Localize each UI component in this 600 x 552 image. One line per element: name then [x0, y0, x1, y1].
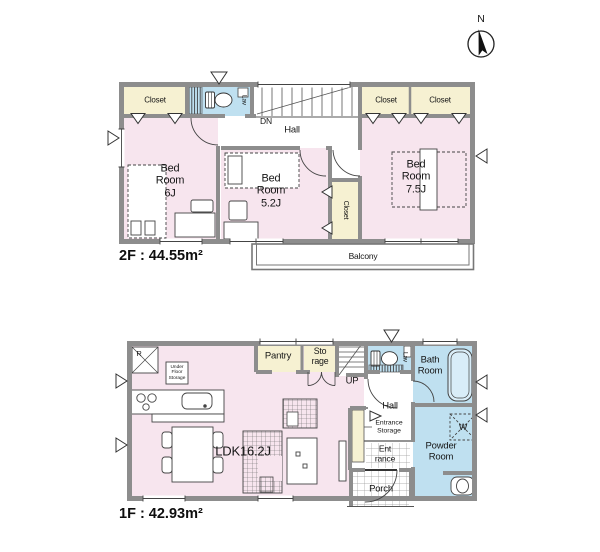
room-label-entrance: Ent rance [375, 444, 395, 463]
floor-1f-area-label: 1F : 42.93m² [119, 506, 203, 522]
labels-layer: Closet Lav DN Hall Closet Closet Bed Roo… [0, 0, 600, 552]
room-label-1f-hall: Hall [382, 402, 398, 413]
entrance-storage-label: Entrance Storage [375, 419, 402, 434]
room-label-porch: Porch [369, 485, 393, 496]
floor-2f-area-label: 2F : 44.55m² [119, 248, 203, 264]
room-label-2f-closet-right-2: Closet [429, 97, 450, 106]
room-label-pantry: Pantry [265, 352, 291, 363]
room-label-storage: Sto rage [312, 347, 329, 367]
washing-machine-label: W [459, 422, 467, 432]
room-label-powder-room: Powder Room [425, 441, 456, 462]
room-label-balcony: Balcony [349, 252, 378, 262]
stairs-up-label: UP [346, 377, 359, 388]
floor-plan-page: Closet Lav DN Hall Closet Closet Bed Roo… [0, 0, 600, 552]
room-label-2f-closet-right-1: Closet [375, 97, 396, 106]
stairs-down-label: DN [260, 117, 272, 127]
room-label-bedroom-6j: Bed Room 6J [156, 163, 185, 200]
room-label-2f-closet-middle: Closet [341, 201, 349, 220]
room-label-2f-lav: Lav [240, 95, 247, 105]
under-floor-storage-label: Under Floor Storage [169, 365, 186, 381]
refrigerator-label: R [136, 350, 141, 358]
room-label-ldk: LDK16.2J [215, 445, 271, 460]
room-label-2f-closet-left: Closet [144, 97, 165, 106]
room-label-bedroom-7-5j: Bed Room 7.5J [402, 159, 431, 196]
room-label-bath-room: Bath Room [418, 355, 443, 376]
room-label-1f-lav: Lav [401, 352, 408, 362]
room-label-2f-hall: Hall [284, 126, 300, 137]
room-label-bedroom-5-2j: Bed Room 5.2J [257, 173, 286, 210]
compass-north-label: N [477, 14, 484, 26]
